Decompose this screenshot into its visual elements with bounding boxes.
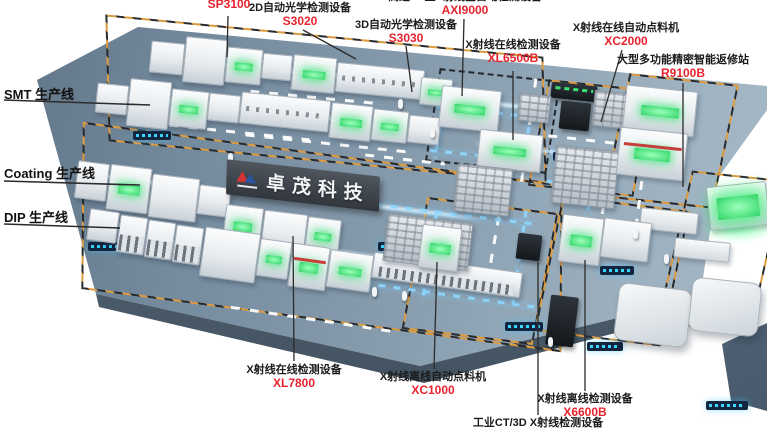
- equipment-housing: [613, 282, 694, 349]
- worker-figure: [430, 128, 435, 138]
- equipment-housing: [687, 276, 762, 337]
- lit-platform-sign: [600, 266, 634, 275]
- machine-unit: [182, 36, 228, 86]
- machine-unit: [600, 217, 653, 263]
- wave-solder-unit: [171, 224, 204, 266]
- worker-figure: [398, 99, 403, 109]
- machine-unit: [95, 82, 130, 115]
- dark-equipment: [559, 101, 592, 132]
- dark-equipment: [516, 233, 543, 262]
- machine-unit: [199, 226, 261, 283]
- callout-sp3100: SP3100: [208, 0, 251, 11]
- machine-unit: [126, 78, 173, 130]
- machine-unit: [147, 173, 200, 223]
- worker-figure: [402, 291, 407, 301]
- worker-figure: [633, 229, 638, 239]
- callout-s3030: 3D自动光学检测设备 S3030: [355, 19, 457, 45]
- machine-unit: [168, 88, 210, 130]
- machine-unit: [326, 249, 375, 293]
- callout-x6600b: X射线离线检测设备 X6600B: [537, 393, 632, 419]
- machine-unit: [207, 92, 242, 123]
- machine-unit: [86, 208, 120, 244]
- label-coating-line: Coating 生产线: [4, 163, 95, 182]
- worker-figure: [372, 287, 377, 297]
- machine-unit: [261, 53, 293, 82]
- machine-unit: [370, 108, 409, 144]
- machine-unit: [149, 40, 186, 75]
- callout-xc1000: X射线离线自动点料机 XC1000: [380, 371, 486, 397]
- worker-figure: [548, 337, 553, 347]
- factory-layout-render: 卓茂科技 SMT 生产线 Coating 生产线 DIP 生产线 SP3100 …: [0, 0, 767, 430]
- machine-unit: [105, 164, 152, 215]
- callout-s3020: 2D自动光学检测设备 S3020: [249, 2, 351, 28]
- callout-axi9000: 高速CT型X射线全自动检测设备 AXI9000: [388, 0, 542, 17]
- label-smt-line: SMT 生产线: [4, 84, 74, 103]
- machine-unit: [407, 114, 442, 145]
- storage-rack: [453, 163, 514, 217]
- lit-platform-sign: [587, 342, 623, 351]
- machine-unit: [224, 46, 263, 85]
- company-logo-icon: [236, 170, 258, 189]
- storage-rack: [517, 92, 552, 123]
- lit-platform-sign: [706, 401, 748, 410]
- storage-rack: [550, 145, 620, 209]
- machine-unit: [290, 54, 337, 94]
- machine-unit: [706, 181, 767, 231]
- machine-unit: [417, 224, 462, 273]
- worker-figure: [664, 254, 669, 264]
- machine-unit: [616, 127, 689, 182]
- lit-platform-sign: [505, 322, 543, 331]
- lit-platform-sign: [133, 131, 171, 140]
- machine-unit: [256, 238, 293, 280]
- machine-unit: [287, 243, 331, 292]
- callout-ct3d: 工业CT/3D X射线检测设备: [473, 417, 603, 430]
- callout-r9100b: 大型多功能精密智能返修站 R9100B: [617, 54, 749, 80]
- machine-unit: [438, 85, 502, 133]
- machine-unit: [557, 214, 605, 267]
- machine-unit: [328, 102, 374, 142]
- callout-xc2000: X射线在线自动点料机 XC2000: [573, 22, 679, 48]
- callout-xl6500b: X射线在线检测设备 XL6500B: [465, 39, 560, 65]
- label-dip-line: DIP 生产线: [4, 207, 68, 226]
- callout-xl7800: X射线在线检测设备 XL7800: [246, 364, 341, 390]
